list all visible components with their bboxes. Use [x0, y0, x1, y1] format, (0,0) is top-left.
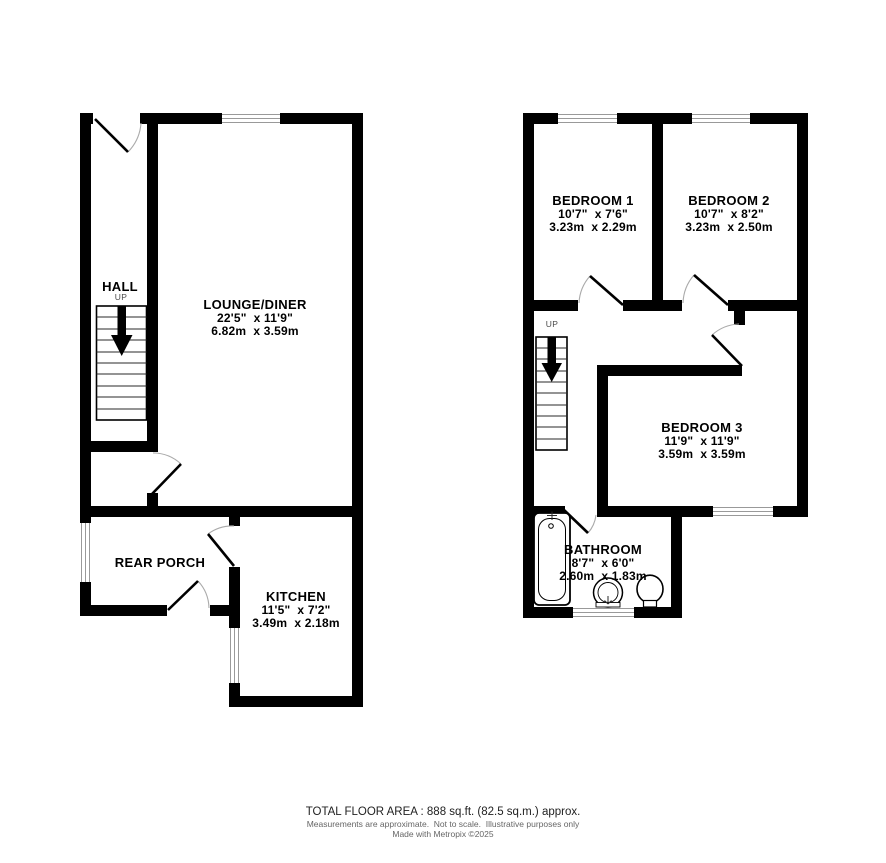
bedroom2-door-swing [683, 275, 728, 305]
wall [523, 607, 573, 618]
bedroom3-label: BEDROOM 3 [661, 420, 742, 435]
floorplan-drawing: HALL UP LOUNGE/DINER 22'5" x 11'9" 6.82m… [0, 0, 886, 863]
wall [229, 567, 240, 628]
wall [80, 605, 167, 616]
bedroom1-window [558, 113, 617, 124]
wall [80, 441, 158, 452]
wall [523, 300, 578, 311]
stairs-ground [97, 306, 147, 420]
hall-up-label: UP [115, 292, 127, 302]
bedroom3-window [713, 506, 773, 517]
kitchen-door-swing [208, 526, 234, 566]
lounge-dims-metric: 6.82m x 3.59m [211, 324, 299, 338]
bathroom-dims-imperial: 8'7" x 6'0" [572, 556, 635, 570]
wall [652, 113, 663, 311]
floorplan-page: HALL UP LOUNGE/DINER 22'5" x 11'9" 6.82m… [0, 0, 886, 863]
first-floor-plan: UP BEDROOM 1 10'7" x 7'6" 3.23m x 2.29m … [523, 113, 808, 618]
wall [147, 493, 158, 517]
lounge-label: LOUNGE/DINER [203, 297, 307, 312]
wall [773, 506, 808, 517]
wall [352, 113, 363, 707]
ground-floor-plan: HALL UP LOUNGE/DINER 22'5" x 11'9" 6.82m… [80, 113, 363, 707]
wall [634, 607, 682, 618]
back-door-swing [168, 581, 209, 610]
bathroom-window [573, 607, 634, 618]
stairs-first [536, 337, 567, 450]
wall [597, 365, 608, 517]
bedroom1-door-swing [579, 276, 623, 305]
bedroom2-dims-metric: 3.23m x 2.50m [685, 220, 773, 234]
wall [797, 113, 808, 517]
bathroom-dims-metric: 2.60m x 1.83m [559, 569, 647, 583]
landing-up-label: UP [546, 319, 558, 329]
kitchen-dims-imperial: 11'5" x 7'2" [261, 603, 330, 617]
footer: TOTAL FLOOR AREA : 888 sq.ft. (82.5 sq.m… [306, 806, 581, 839]
disclaimer: Measurements are approximate. Not to sca… [307, 819, 580, 829]
front-door-swing [95, 119, 141, 152]
bathroom-label: BATHROOM [564, 542, 642, 557]
lounge-window [222, 113, 280, 124]
wall [80, 506, 363, 517]
lounge-door-swing [152, 453, 181, 494]
wall [280, 113, 363, 124]
bedroom2-label: BEDROOM 2 [688, 193, 769, 208]
bedroom1-dims-metric: 3.23m x 2.29m [549, 220, 637, 234]
bedroom2-dims-imperial: 10'7" x 8'2" [694, 207, 764, 221]
bedroom3-door-swing [712, 324, 742, 366]
bedroom1-label: BEDROOM 1 [552, 193, 633, 208]
wall [523, 113, 534, 618]
wall [147, 113, 158, 452]
wall [80, 113, 91, 523]
bedroom3-dims-imperial: 11'9" x 11'9" [664, 434, 739, 448]
porch-window [80, 523, 91, 582]
bedroom3-dims-metric: 3.59m x 3.59m [658, 447, 746, 461]
kitchen-window [229, 628, 240, 683]
kitchen-dims-metric: 3.49m x 2.18m [252, 616, 340, 630]
wall [597, 365, 742, 376]
rear-porch-label: REAR PORCH [115, 555, 205, 570]
wall [734, 300, 745, 325]
total-floor-area: TOTAL FLOOR AREA : 888 sq.ft. (82.5 sq.m… [306, 806, 581, 818]
kitchen-label: KITCHEN [266, 589, 326, 604]
wall [229, 506, 240, 526]
credit: Made with Metropix ©2025 [392, 829, 494, 839]
bathtub-icon [534, 512, 570, 606]
bedroom1-dims-imperial: 10'7" x 7'6" [558, 207, 628, 221]
wall [671, 506, 682, 618]
lounge-dims-imperial: 22'5" x 11'9" [217, 311, 293, 325]
bedroom2-window [692, 113, 750, 124]
wall [597, 506, 713, 517]
wall [229, 696, 363, 707]
